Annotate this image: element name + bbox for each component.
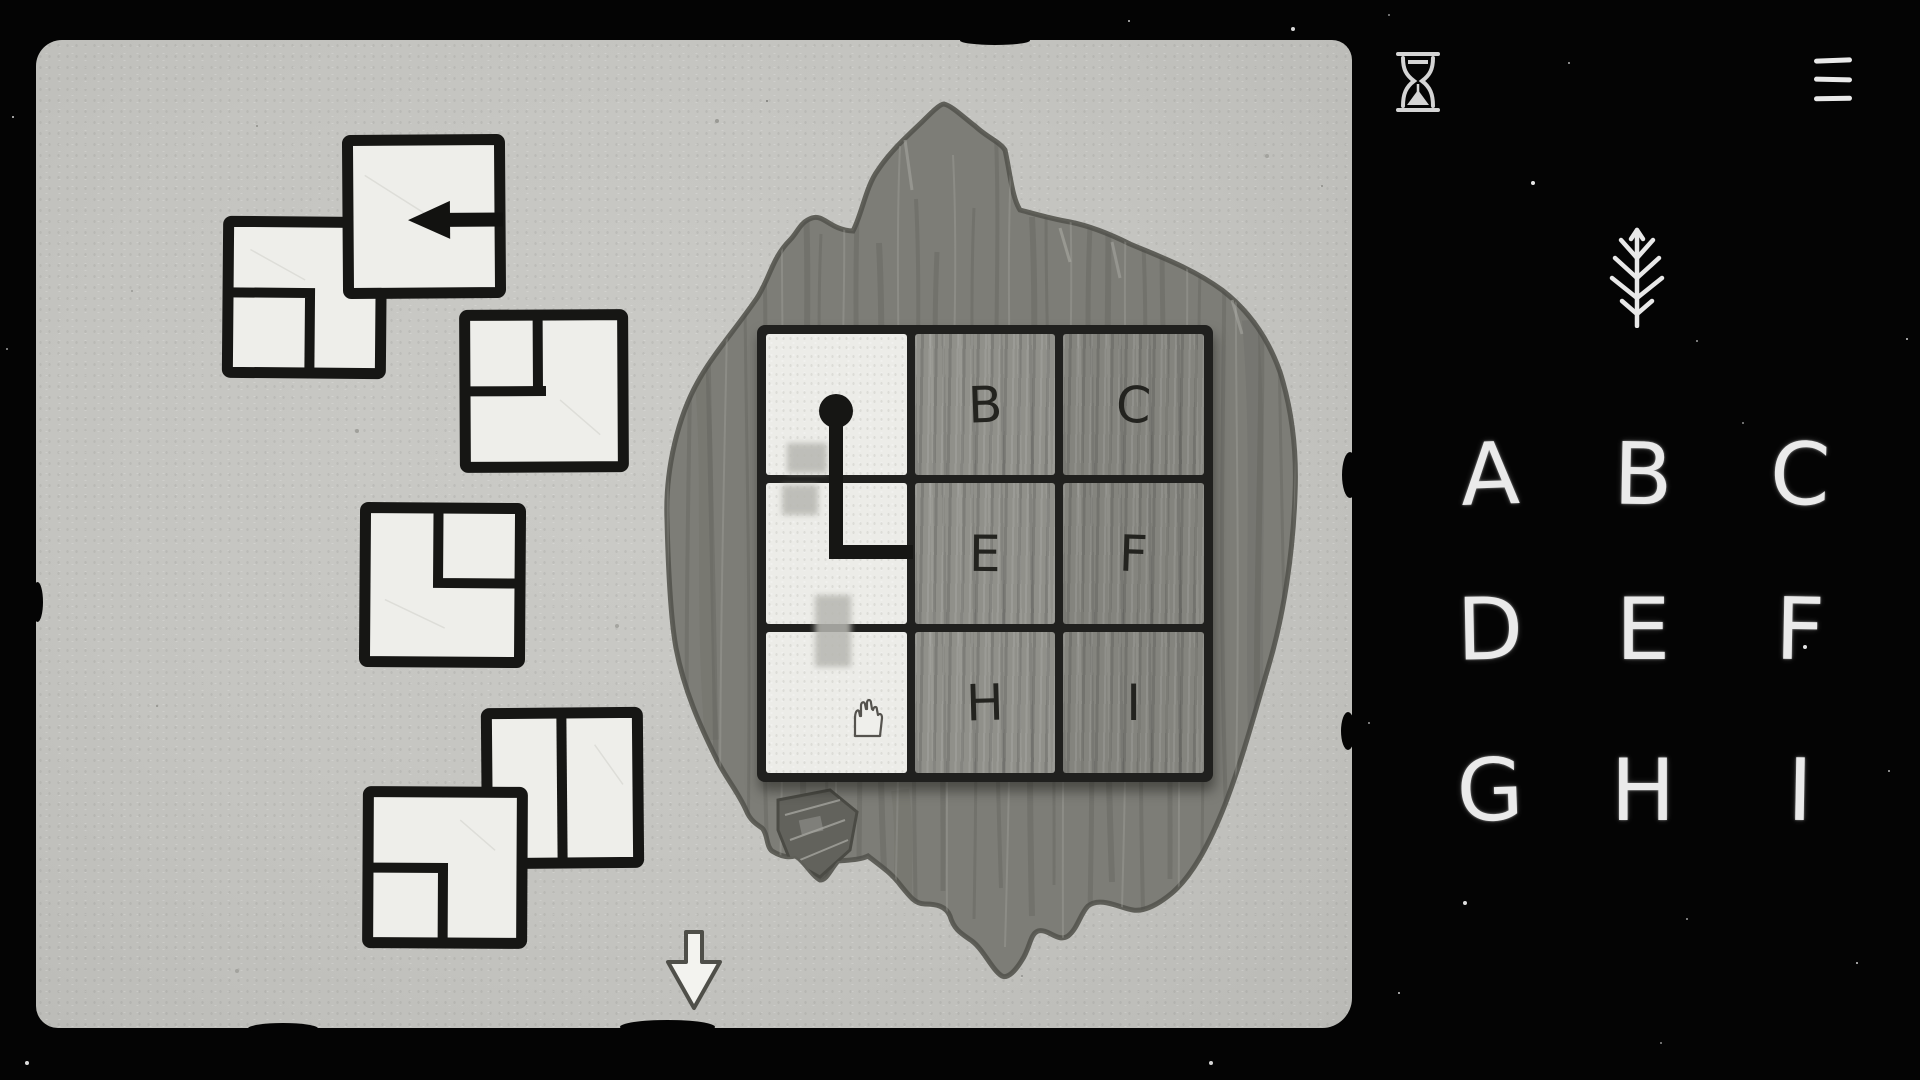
menu-bar (1814, 77, 1852, 83)
grid-cell-letter: B (967, 379, 1003, 430)
paper-edge-nick (960, 36, 1030, 45)
grid-cell-E[interactable]: E (915, 483, 1056, 624)
grid-cell-F[interactable]: F (1063, 483, 1204, 624)
grid-cell-I[interactable]: I (1063, 632, 1204, 773)
puzzle-piece-6[interactable] (360, 784, 533, 954)
legend-letter-G: G (1409, 707, 1571, 874)
paper-flecks (36, 40, 38, 42)
wood-knot (778, 790, 857, 877)
paper-edge-nick (1341, 712, 1355, 750)
grid-cell-letter: C (1115, 379, 1152, 431)
background-specks (0, 0, 2, 2)
grid-cell-B[interactable]: B (915, 334, 1056, 475)
legend-letter-C: C (1715, 397, 1884, 553)
legend-letter-F: F (1717, 549, 1884, 712)
puzzle-piece-4[interactable] (356, 499, 529, 672)
grid-cell-letter: F (1118, 528, 1148, 579)
down-arrow-icon[interactable] (652, 920, 736, 1020)
hourglass-icon[interactable] (1388, 44, 1450, 118)
paper-edge-nick (620, 1020, 715, 1034)
paper-edge-nick (1342, 452, 1358, 498)
puzzle-piece-3[interactable] (457, 307, 634, 478)
legend-letter-H: H (1568, 710, 1718, 872)
game-screen: B C E F H I (0, 0, 1920, 1080)
puzzle-grid: B C E F H I (757, 325, 1213, 782)
grid-cell-C[interactable]: C (1063, 334, 1204, 475)
hamburger-menu-icon[interactable] (1812, 58, 1854, 110)
legend-letter-I: I (1717, 709, 1884, 874)
grid-cell-H[interactable]: H (915, 632, 1056, 773)
legend-letter-A: A (1409, 397, 1570, 552)
legend-letter-grid: A B C D E F G H I (1412, 400, 1882, 872)
legend-letter-B: B (1567, 399, 1720, 552)
eraser-smudge (815, 595, 851, 667)
grid-cell-letter: H (966, 677, 1005, 728)
eraser-smudge (782, 485, 818, 515)
grid-cell-letter: E (969, 528, 1001, 578)
paper-edge-nick (248, 1023, 318, 1034)
puzzle-piece-1[interactable] (339, 131, 512, 302)
sapling-icon (1600, 220, 1676, 328)
eraser-smudge (787, 443, 827, 473)
menu-bar (1814, 57, 1852, 63)
legend-letter-D: D (1411, 549, 1570, 712)
grid-cell-letter: I (1126, 678, 1141, 728)
paper-edge-nick (32, 582, 43, 622)
legend-letter-E: E (1568, 550, 1718, 710)
menu-bar (1814, 96, 1852, 102)
